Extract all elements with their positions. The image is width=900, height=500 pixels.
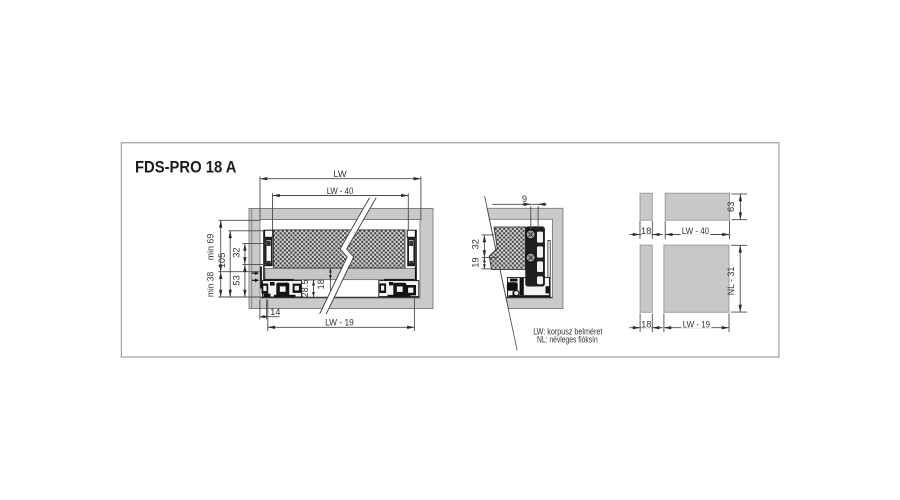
svg-text:9: 9 [522,194,527,204]
svg-text:min 69: min 69 [206,234,216,261]
svg-text:18: 18 [316,279,326,289]
svg-text:14: 14 [270,307,280,317]
svg-text:LW - 19: LW - 19 [683,319,710,329]
svg-text:LW - 40: LW - 40 [327,186,354,196]
svg-text:32: 32 [471,239,481,249]
svg-text:LW - 40: LW - 40 [682,226,709,236]
svg-text:19: 19 [471,257,481,267]
svg-text:28.5: 28.5 [300,279,310,297]
svg-text:LW - 19: LW - 19 [325,317,354,327]
svg-text:53: 53 [232,275,242,285]
svg-text:18: 18 [641,226,651,236]
svg-text:63: 63 [726,202,736,212]
svg-text:105: 105 [217,253,227,269]
svg-text:FDS-PRO 18 A: FDS-PRO 18 A [135,159,237,177]
svg-text:32: 32 [232,247,242,257]
svg-text:NL: névleges fióksín: NL: névleges fióksín [537,335,598,345]
svg-text:LW: LW [333,169,346,179]
svg-text:min 38: min 38 [206,272,216,297]
svg-text:18: 18 [641,319,651,329]
svg-text:NL - 31: NL - 31 [726,267,736,295]
